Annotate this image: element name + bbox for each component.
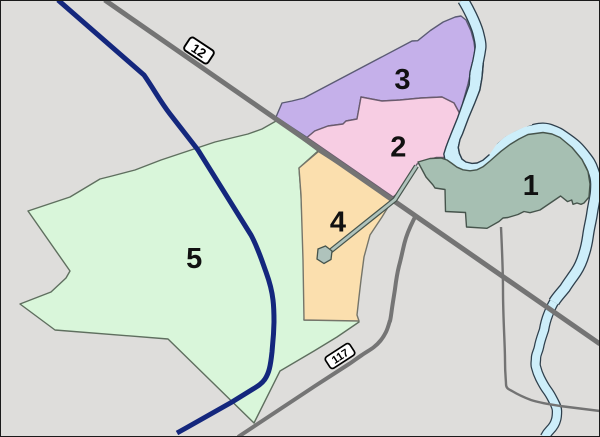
svg-text:3: 3 [394, 64, 410, 96]
svg-text:4: 4 [330, 206, 346, 238]
svg-text:5: 5 [186, 243, 202, 275]
svg-text:1: 1 [523, 170, 539, 202]
svg-text:2: 2 [390, 132, 406, 164]
